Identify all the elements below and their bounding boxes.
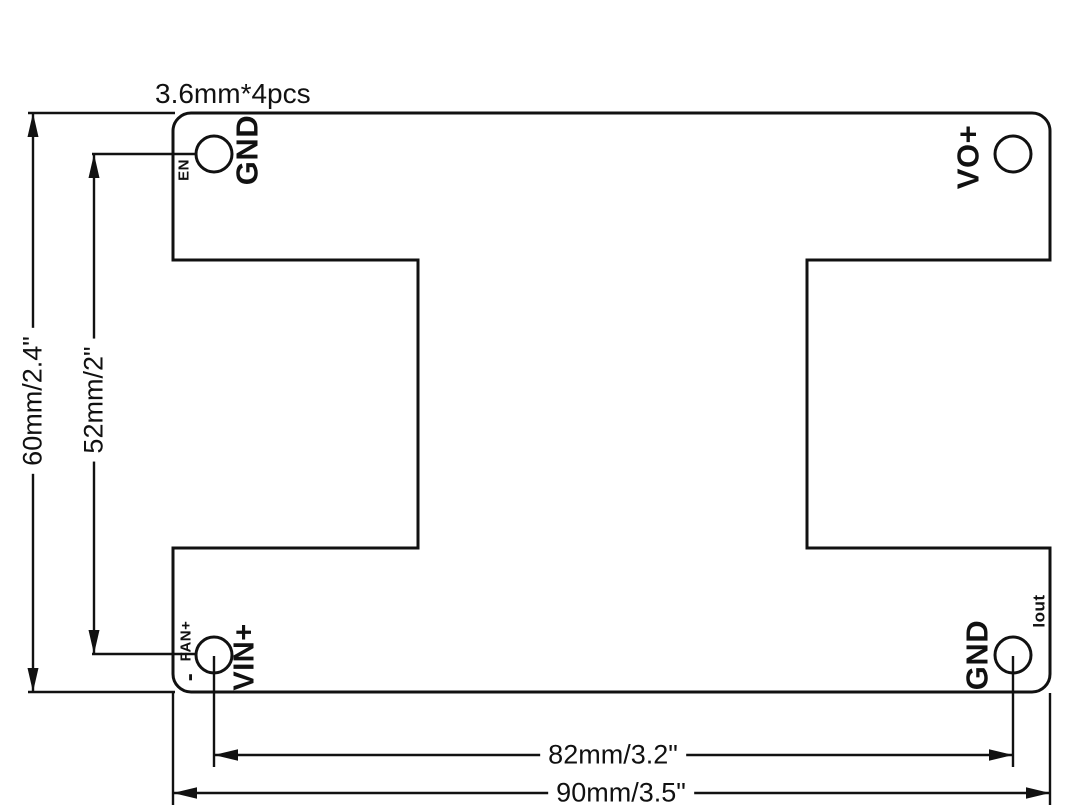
dim-label-hole-pitch-horizontal: 82mm/3.2" <box>540 742 686 769</box>
dim-label-hole-pitch-vertical: 52mm/2" <box>81 338 108 461</box>
arrowhead-left-icon <box>173 787 197 798</box>
dim-label-board-height: 60mm/2.4" <box>20 328 47 474</box>
mounting-hole-top-left <box>196 136 232 172</box>
board-outline <box>173 113 1050 692</box>
arrowhead-right-icon <box>989 749 1013 760</box>
arrowhead-down-icon <box>28 668 39 692</box>
silkscreen-label-gnd-bottom: GND <box>962 620 993 690</box>
hole-size-note: 3.6mm*4pcs <box>155 80 311 108</box>
arrowhead-left-icon <box>214 749 238 760</box>
arrowhead-up-icon <box>89 154 100 178</box>
silkscreen-label-vo-plus: VO+ <box>953 125 984 189</box>
arrowhead-down-icon <box>89 630 100 654</box>
pcb-dimension-diagram: 3.6mm*4pcs EN GND VO+ FAN+ - VIN+ GND Io… <box>0 0 1078 812</box>
silkscreen-label-fan-plus: FAN+ <box>179 621 194 662</box>
silkscreen-label-vin-plus: VIN+ <box>231 623 260 690</box>
dim-label-board-width: 90mm/3.5" <box>548 780 694 807</box>
silkscreen-label-gnd-top: GND <box>232 115 263 185</box>
arrowhead-right-icon <box>1026 787 1050 798</box>
silkscreen-label-minus: - <box>178 673 202 682</box>
silkscreen-label-en: EN <box>177 159 192 181</box>
silkscreen-label-iout: Iout <box>1031 594 1048 627</box>
arrowhead-up-icon <box>28 113 39 137</box>
diagram-geometry <box>0 0 1078 812</box>
mounting-hole-top-right <box>995 136 1031 172</box>
